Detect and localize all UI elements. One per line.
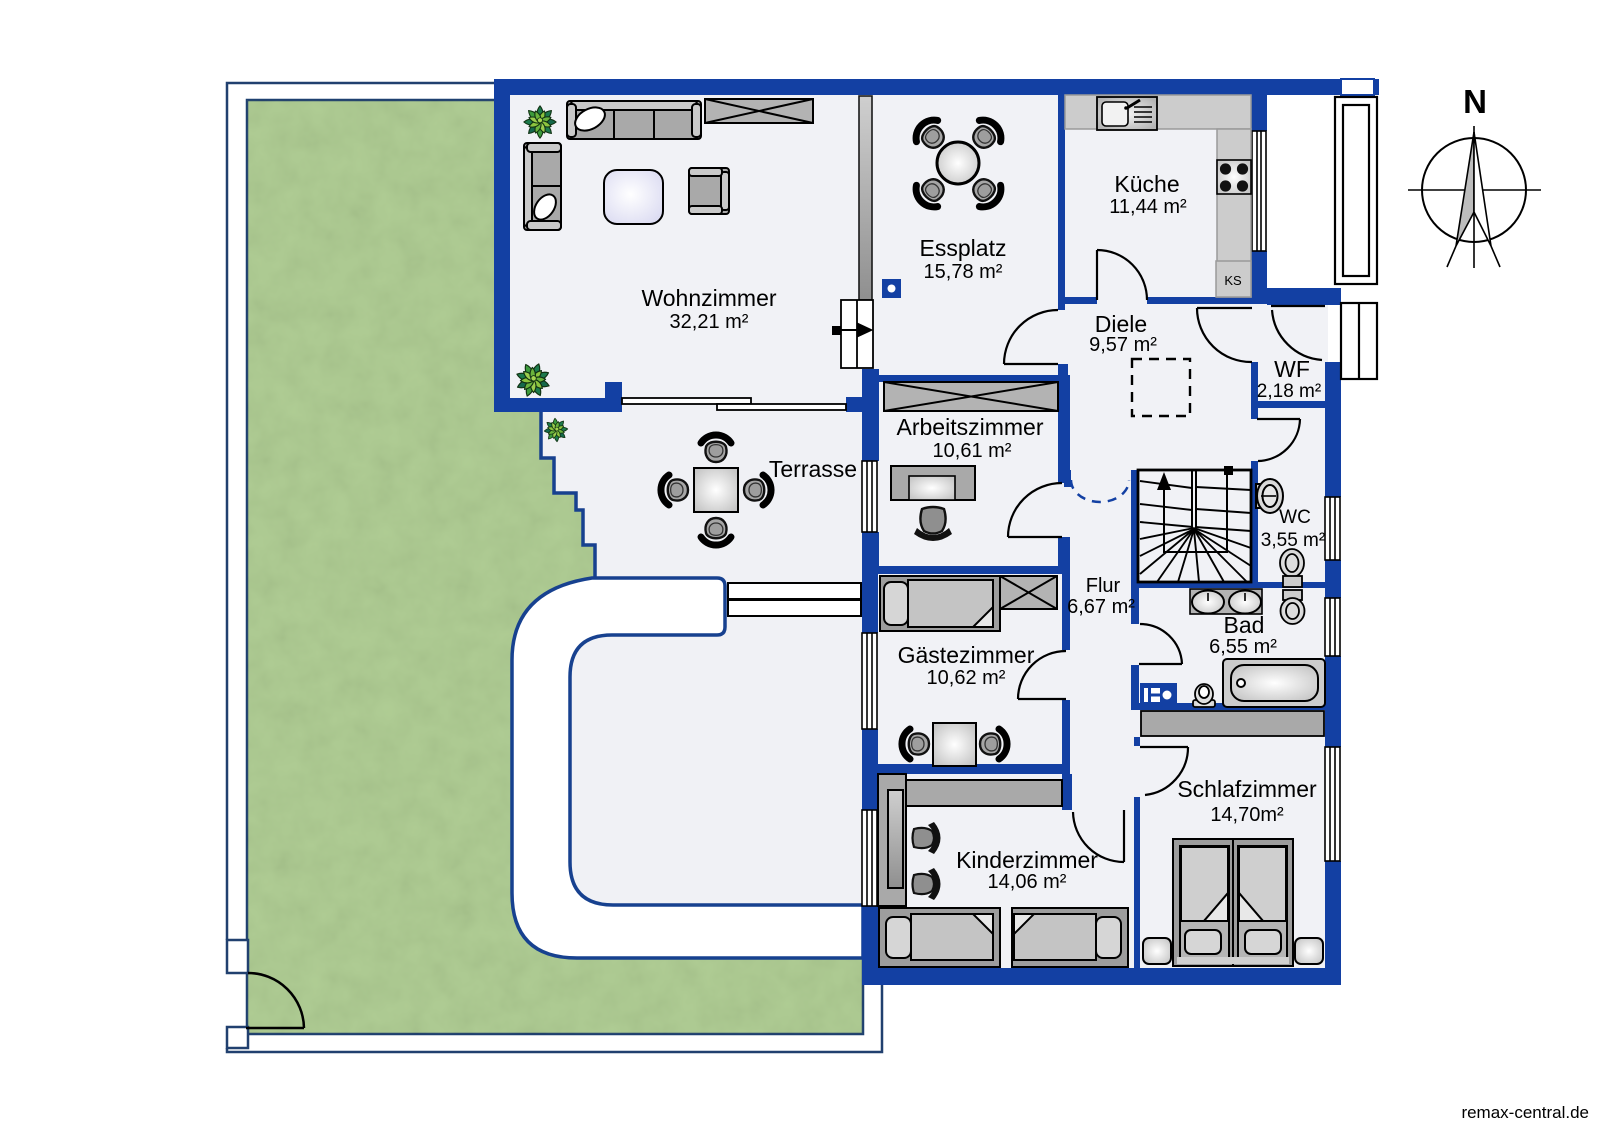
svg-text:3,55 m²: 3,55 m² [1261, 530, 1325, 551]
svg-text:6,67 m²: 6,67 m² [1067, 596, 1135, 618]
svg-text:Kinderzimmer: Kinderzimmer [956, 847, 1098, 873]
svg-text:11,44 m²: 11,44 m² [1109, 196, 1187, 218]
svg-text:10,61 m²: 10,61 m² [933, 440, 1012, 462]
svg-text:Schlafzimmer: Schlafzimmer [1177, 776, 1317, 802]
svg-text:Wohnzimmer: Wohnzimmer [641, 285, 776, 311]
svg-text:Arbeitszimmer: Arbeitszimmer [897, 414, 1044, 440]
svg-text:32,21 m²: 32,21 m² [670, 311, 749, 333]
svg-text:15,78 m²: 15,78 m² [924, 261, 1003, 283]
svg-text:remax-central.de: remax-central.de [1461, 1103, 1589, 1122]
svg-text:2,18 m²: 2,18 m² [1257, 381, 1321, 402]
svg-text:10,62 m²: 10,62 m² [927, 667, 1006, 689]
svg-text:Bad: Bad [1224, 612, 1265, 638]
svg-text:Küche: Küche [1114, 171, 1179, 197]
svg-text:Terrasse: Terrasse [769, 456, 857, 482]
svg-text:Gästezimmer: Gästezimmer [898, 642, 1035, 668]
svg-text:9,57 m²: 9,57 m² [1089, 334, 1157, 356]
svg-text:Flur: Flur [1086, 575, 1121, 597]
svg-text:N: N [1463, 83, 1487, 120]
svg-text:WF: WF [1274, 356, 1310, 382]
svg-text:14,70m²: 14,70m² [1210, 804, 1284, 826]
svg-text:KS: KS [1224, 273, 1242, 288]
svg-text:Essplatz: Essplatz [920, 235, 1007, 261]
svg-text:6,55 m²: 6,55 m² [1209, 636, 1277, 658]
svg-text:WC: WC [1279, 507, 1311, 528]
svg-text:14,06 m²: 14,06 m² [988, 871, 1067, 893]
